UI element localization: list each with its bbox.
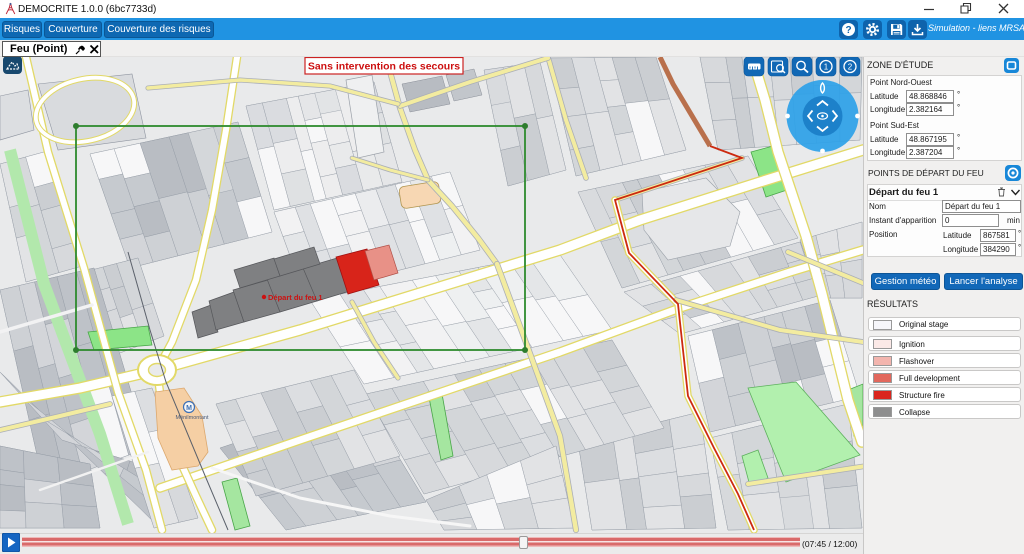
svg-text:1: 1 xyxy=(824,63,829,72)
svg-text:Sans intervention des secours: Sans intervention des secours xyxy=(308,61,460,73)
svg-text:2: 2 xyxy=(848,63,853,72)
svg-text:M: M xyxy=(186,405,192,412)
svg-text:?: ? xyxy=(845,25,851,36)
svg-text:Départ du feu 1: Départ du feu 1 xyxy=(268,293,323,302)
svg-text:Ménilmontant: Ménilmontant xyxy=(175,415,208,421)
